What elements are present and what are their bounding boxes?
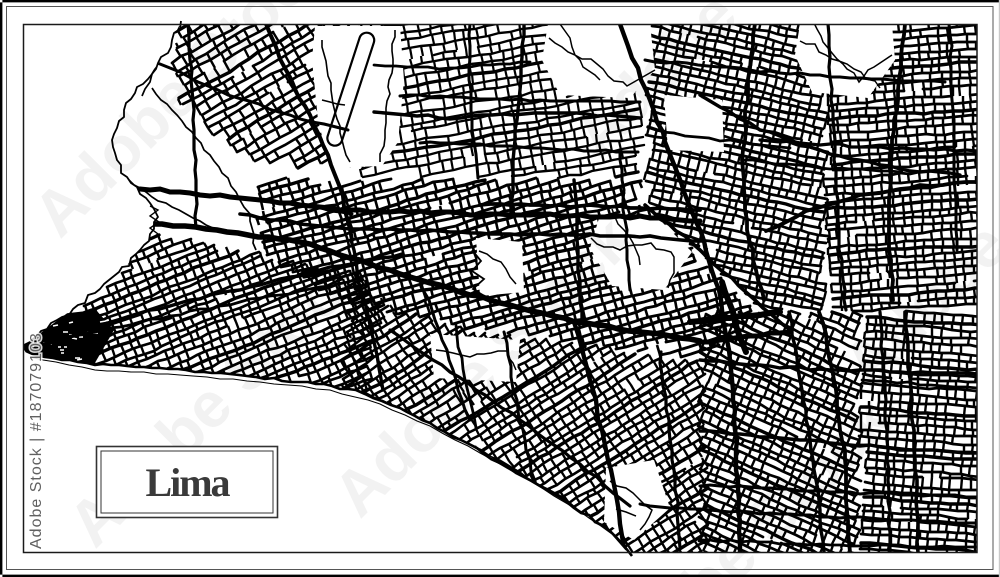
svg-text:Adobe Stock | #187079103: Adobe Stock | #187079103 — [28, 332, 45, 549]
svg-text:Lima: Lima — [145, 460, 230, 505]
